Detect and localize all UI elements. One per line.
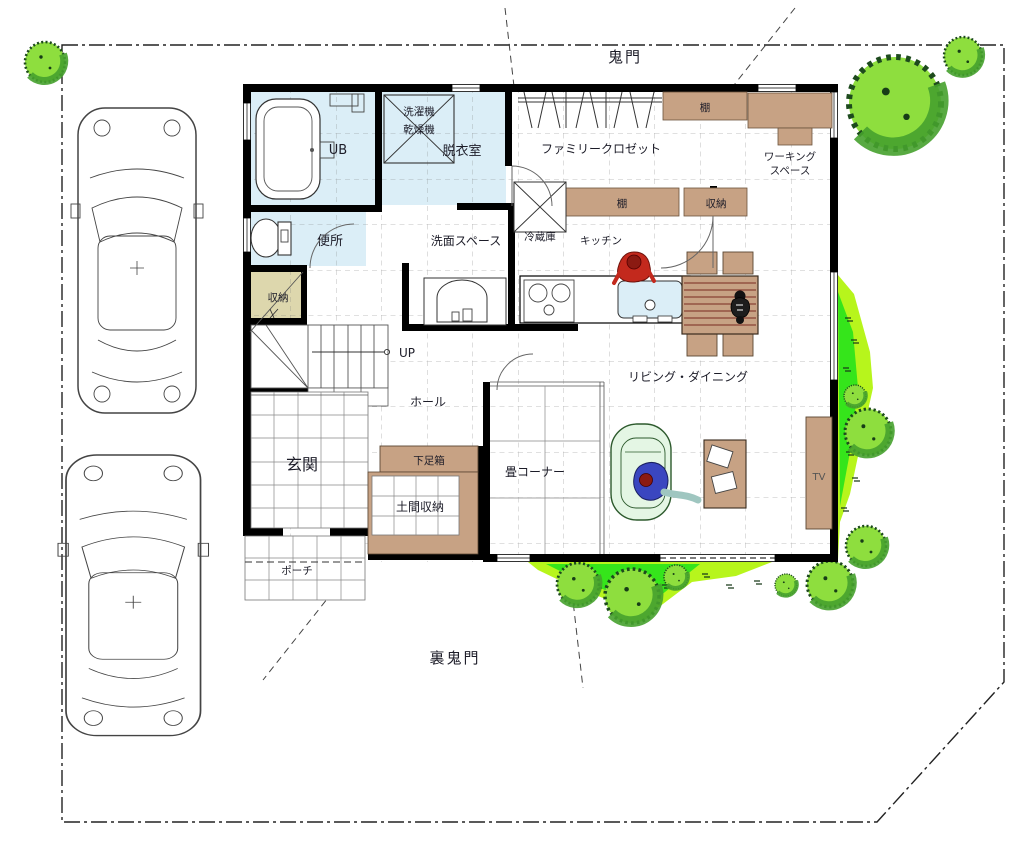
working-desk (748, 93, 832, 128)
label-working-1: ワーキング (764, 150, 817, 163)
label-shelf-mid: 棚 (617, 197, 628, 210)
car-1 (71, 108, 203, 413)
dining-chair (723, 334, 753, 356)
label-stair-storage: 収納 (268, 291, 289, 304)
label-shelf-top: 棚 (700, 101, 711, 114)
tree-icon (775, 574, 797, 596)
label-closet-storage: 収納 (706, 197, 727, 210)
label-tatami-corner: 畳コーナー (505, 465, 565, 479)
tree-icon (557, 563, 599, 605)
dining-chair (723, 252, 753, 274)
label-family-closet: ファミリークロゼット (541, 142, 661, 156)
label-doma-storage: 土間収納 (396, 500, 444, 514)
dining-chair (687, 334, 717, 356)
window (497, 555, 530, 562)
kitchen-counter (520, 276, 690, 323)
label-entrance: 玄関 (286, 455, 318, 474)
label-toilet: 便所 (317, 234, 343, 249)
label-ub: UB (329, 143, 347, 158)
tree-icon (605, 569, 659, 623)
tree-icon (849, 57, 941, 149)
floor-plan-canvas: 鬼門 裏鬼門 (0, 0, 1034, 847)
label-ura-kimon: 裏鬼門 (429, 649, 480, 667)
desk-chair (778, 128, 812, 145)
label-fridge: 冷蔵庫 (524, 230, 556, 243)
car-2 (58, 455, 208, 736)
tree-icon (845, 409, 891, 455)
window (758, 85, 796, 92)
sliding-door (660, 555, 775, 562)
label-hall: ホール (410, 395, 446, 409)
building: UB 洗濯機 乾燥機 脱衣室 便所 洗面スペース ファミリークロゼット (243, 84, 838, 562)
tree-icon (846, 526, 886, 566)
label-dryer: 乾燥機 (403, 123, 435, 136)
toilet-fixture (251, 219, 291, 257)
label-up: UP (399, 346, 415, 360)
kitchen-sink (618, 281, 682, 322)
washbasin (424, 278, 506, 325)
tree-icon (807, 561, 853, 607)
label-washroom: 洗面スペース (431, 234, 502, 248)
label-living-dining: リビング・ダイニング (628, 369, 748, 384)
floor-plan-page: 鬼門 裏鬼門 (0, 0, 1034, 847)
label-kimon: 鬼門 (608, 48, 642, 66)
window (452, 85, 480, 92)
window (831, 272, 838, 380)
label-working-2: スペース (770, 165, 811, 177)
refrigerator (514, 182, 566, 232)
window (244, 103, 251, 140)
tree-icon (944, 37, 982, 75)
window (244, 218, 251, 252)
tree-icon (844, 385, 866, 407)
tree-icon (664, 565, 688, 589)
label-washer: 洗濯機 (403, 105, 435, 118)
label-shoe-box: 下足箱 (413, 454, 445, 467)
coffee-table (704, 440, 746, 508)
label-kitchen: キッチン (580, 235, 622, 247)
label-tv: TV (812, 472, 826, 483)
label-dressing-room: 脱衣室 (442, 143, 481, 159)
tree-icon (25, 42, 65, 82)
label-porch: ポーチ (281, 565, 313, 577)
